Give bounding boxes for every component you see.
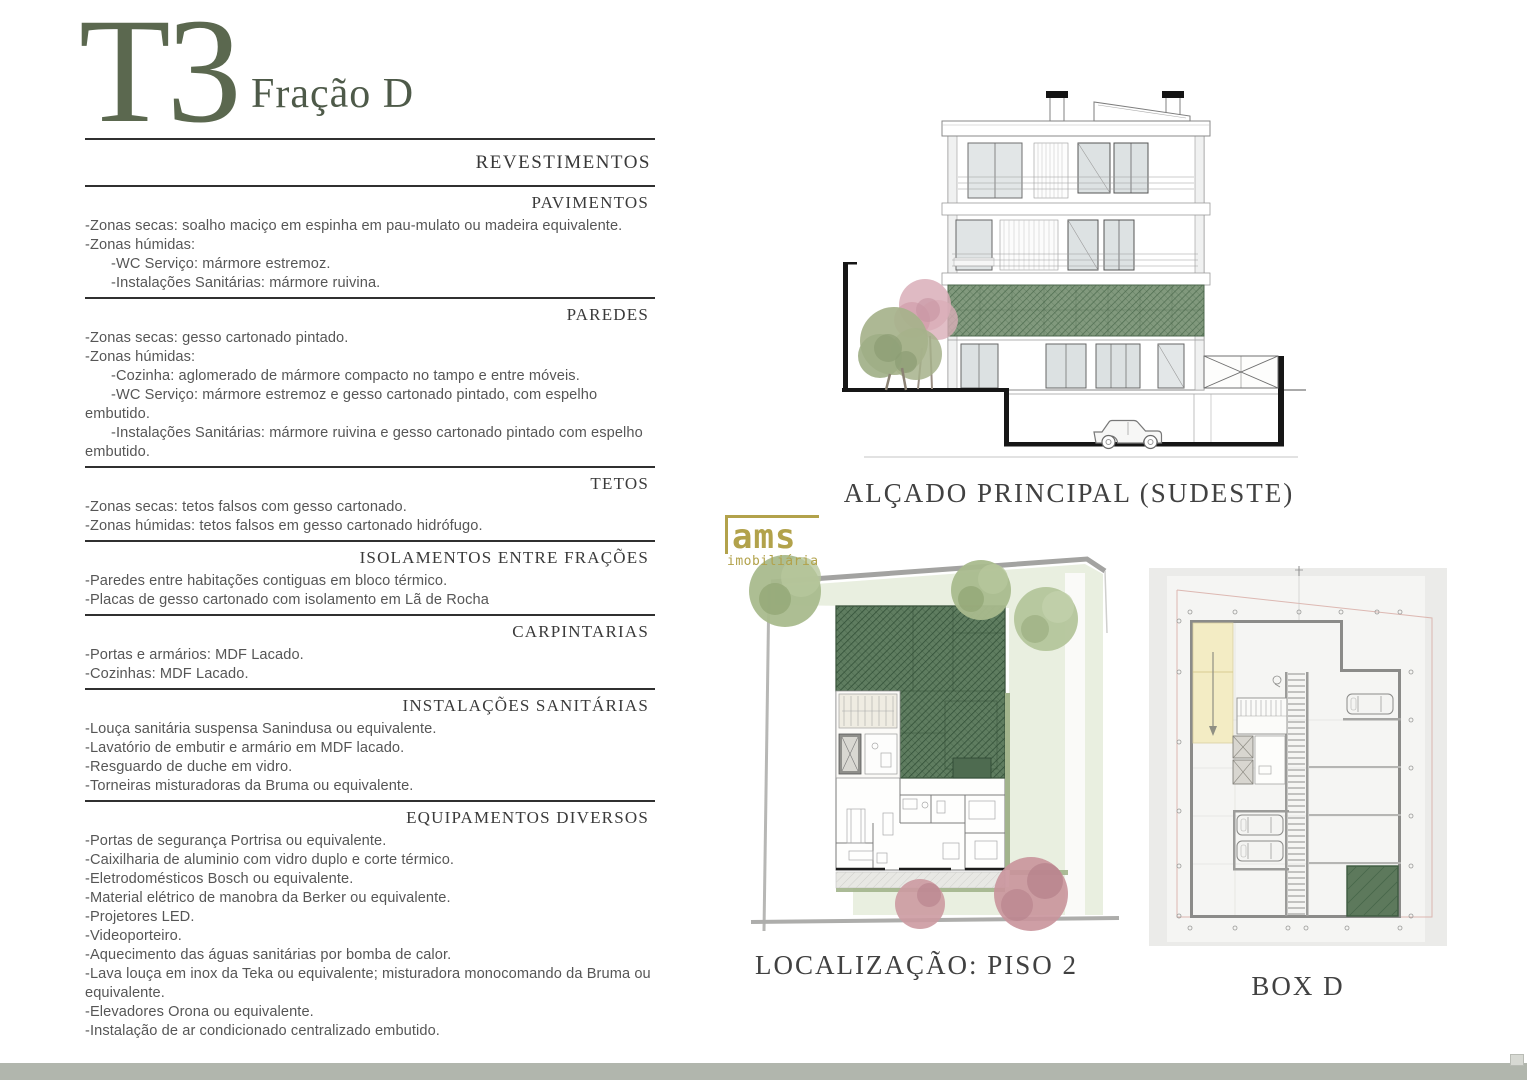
- divider: [85, 614, 655, 616]
- scrollbar-track[interactable]: [0, 1063, 1527, 1080]
- siteplan-drawing: [713, 513, 1120, 933]
- scrollbar-thumb[interactable]: [1510, 1054, 1524, 1066]
- spec-column: T3 Fração D REVESTIMENTOS PAVIMENTOS -Zo…: [85, 26, 655, 1045]
- boxd-caption: BOX D: [1149, 971, 1447, 1002]
- spec-item: -Resguardo de duche em vidro.: [85, 758, 655, 777]
- agency-watermark: ams imobiliária: [725, 515, 819, 568]
- spec-item: -Elevadores Orona ou equivalente.: [85, 1003, 655, 1022]
- agency-logo: ams: [725, 515, 819, 554]
- car-icon: [1347, 694, 1393, 714]
- elevation-caption: ALÇADO PRINCIPAL (SUDESTE): [828, 478, 1310, 509]
- spec-item: -Material elétrico de manobra da Berker …: [85, 889, 655, 908]
- divider: [85, 688, 655, 690]
- green-screen-band: [948, 285, 1204, 336]
- spec-item: -Caixilharia de aluminio com vidro duplo…: [85, 851, 655, 870]
- spec-item: -Paredes entre habitações contiguas em b…: [85, 572, 655, 591]
- fraction-subtitle: Fração D: [251, 70, 414, 118]
- section-isolamentos: ISOLAMENTOS ENTRE FRAÇÕES -Paredes entre…: [85, 542, 655, 614]
- spec-item: -Zonas húmidas:: [85, 236, 655, 255]
- tree-icon: [951, 560, 1011, 620]
- ramp-treads: [1288, 674, 1305, 914]
- spec-item: -Zonas húmidas: tetos falsos em gesso ca…: [85, 517, 655, 536]
- divider: [85, 540, 655, 542]
- spec-item: -Zonas secas: soalho maciço em espinha e…: [85, 217, 655, 236]
- hedge: [1005, 693, 1010, 870]
- divider: [85, 466, 655, 468]
- spec-item: -Zonas húmidas:: [85, 348, 655, 367]
- spec-item: -Lava louça em inox da Teka ou equivalen…: [85, 965, 655, 1003]
- car-icon: [1237, 815, 1283, 835]
- spec-item: -Cozinha: aglomerado de mármore compacto…: [85, 367, 655, 386]
- section-tetos: TETOS -Zonas secas: tetos falsos com ges…: [85, 468, 655, 540]
- divider: [85, 185, 655, 187]
- facade: [942, 91, 1210, 390]
- spec-item: -Instalações Sanitárias: mármore ruivina…: [85, 274, 655, 293]
- garage-plan-drawing: [1149, 560, 1447, 950]
- tree-icon: [994, 857, 1068, 931]
- section-title: CARPINTARIAS: [85, 616, 655, 646]
- spec-item: -Lavatório de embutir e armário em MDF l…: [85, 739, 655, 758]
- spec-item: -WC Serviço: mármore estremoz e gesso ca…: [85, 386, 655, 424]
- spec-item: -Placas de gesso cartonado com isolament…: [85, 591, 655, 610]
- typology-title: T3: [79, 0, 238, 146]
- section-title: PAVIMENTOS: [85, 187, 655, 217]
- section-title: TETOS: [85, 468, 655, 498]
- section-title: PAREDES: [85, 299, 655, 329]
- spec-item: -Zonas secas: gesso cartonado pintado.: [85, 329, 655, 348]
- spec-item: -Portas e armários: MDF Lacado.: [85, 646, 655, 665]
- section-paredes: PAREDES -Zonas secas: gesso cartonado pi…: [85, 299, 655, 466]
- spec-sheet-page: T3 Fração D REVESTIMENTOS PAVIMENTOS -Zo…: [0, 0, 1527, 1080]
- siteplan-caption: LOCALIZAÇÃO: PISO 2: [713, 950, 1120, 981]
- elevation-figure: ALÇADO PRINCIPAL (SUDESTE): [828, 58, 1310, 509]
- siteplan-figure: ams imobiliária: [713, 513, 1120, 981]
- tree-icon: [1014, 587, 1078, 651]
- chimney: [1050, 97, 1064, 121]
- boxd-figure: BOX D: [1149, 560, 1447, 1002]
- spec-item: -Zonas secas: tetos falsos com gesso car…: [85, 498, 655, 517]
- spec-item: -Cozinhas: MDF Lacado.: [85, 665, 655, 684]
- building-elevation-drawing: [828, 58, 1310, 463]
- section-equipamentos: EQUIPAMENTOS DIVERSOS -Portas de seguran…: [85, 802, 655, 1045]
- ramp-area: [1193, 623, 1233, 743]
- spec-item: -Louça sanitária suspensa Sanindusa ou e…: [85, 720, 655, 739]
- spec-item: -Projetores LED.: [85, 908, 655, 927]
- spec-item: -Aquecimento das águas sanitárias por bo…: [85, 946, 655, 965]
- section-carpintarias: CARPINTARIAS -Portas e armários: MDF Lac…: [85, 616, 655, 688]
- tree-icon: [895, 879, 945, 929]
- spec-item: -Videoporteiro.: [85, 927, 655, 946]
- stair-core: [836, 691, 900, 778]
- section-title: ISOLAMENTOS ENTRE FRAÇÕES: [85, 542, 655, 572]
- divider: [85, 800, 655, 802]
- boxd-highlight: [1347, 866, 1398, 916]
- spec-item: -Eletrodomésticos Bosch ou equivalente.: [85, 870, 655, 889]
- spec-item: -Portas de segurança Portrisa ou equival…: [85, 832, 655, 851]
- section-instalacoes-sanitarias: INSTALAÇÕES SANITÁRIAS -Louça sanitária …: [85, 690, 655, 800]
- brand-block: T3 Fração D: [85, 26, 655, 138]
- section-title: INSTALAÇÕES SANITÁRIAS: [85, 690, 655, 720]
- section-title: EQUIPAMENTOS DIVERSOS: [85, 802, 655, 832]
- section-pavimentos: PAVIMENTOS -Zonas secas: soalho maciço e…: [85, 187, 655, 297]
- spec-item: -Instalação de ar condicionado centraliz…: [85, 1022, 655, 1041]
- spec-item: -Instalações Sanitárias: mármore ruivina…: [85, 424, 655, 462]
- divider: [85, 297, 655, 299]
- spec-item: -Torneiras misturadoras da Bruma ou equi…: [85, 777, 655, 796]
- agency-logo-sub: imobiliária: [725, 555, 819, 568]
- car-icon: [1237, 841, 1283, 861]
- spec-item: -WC Serviço: mármore estremoz.: [85, 255, 655, 274]
